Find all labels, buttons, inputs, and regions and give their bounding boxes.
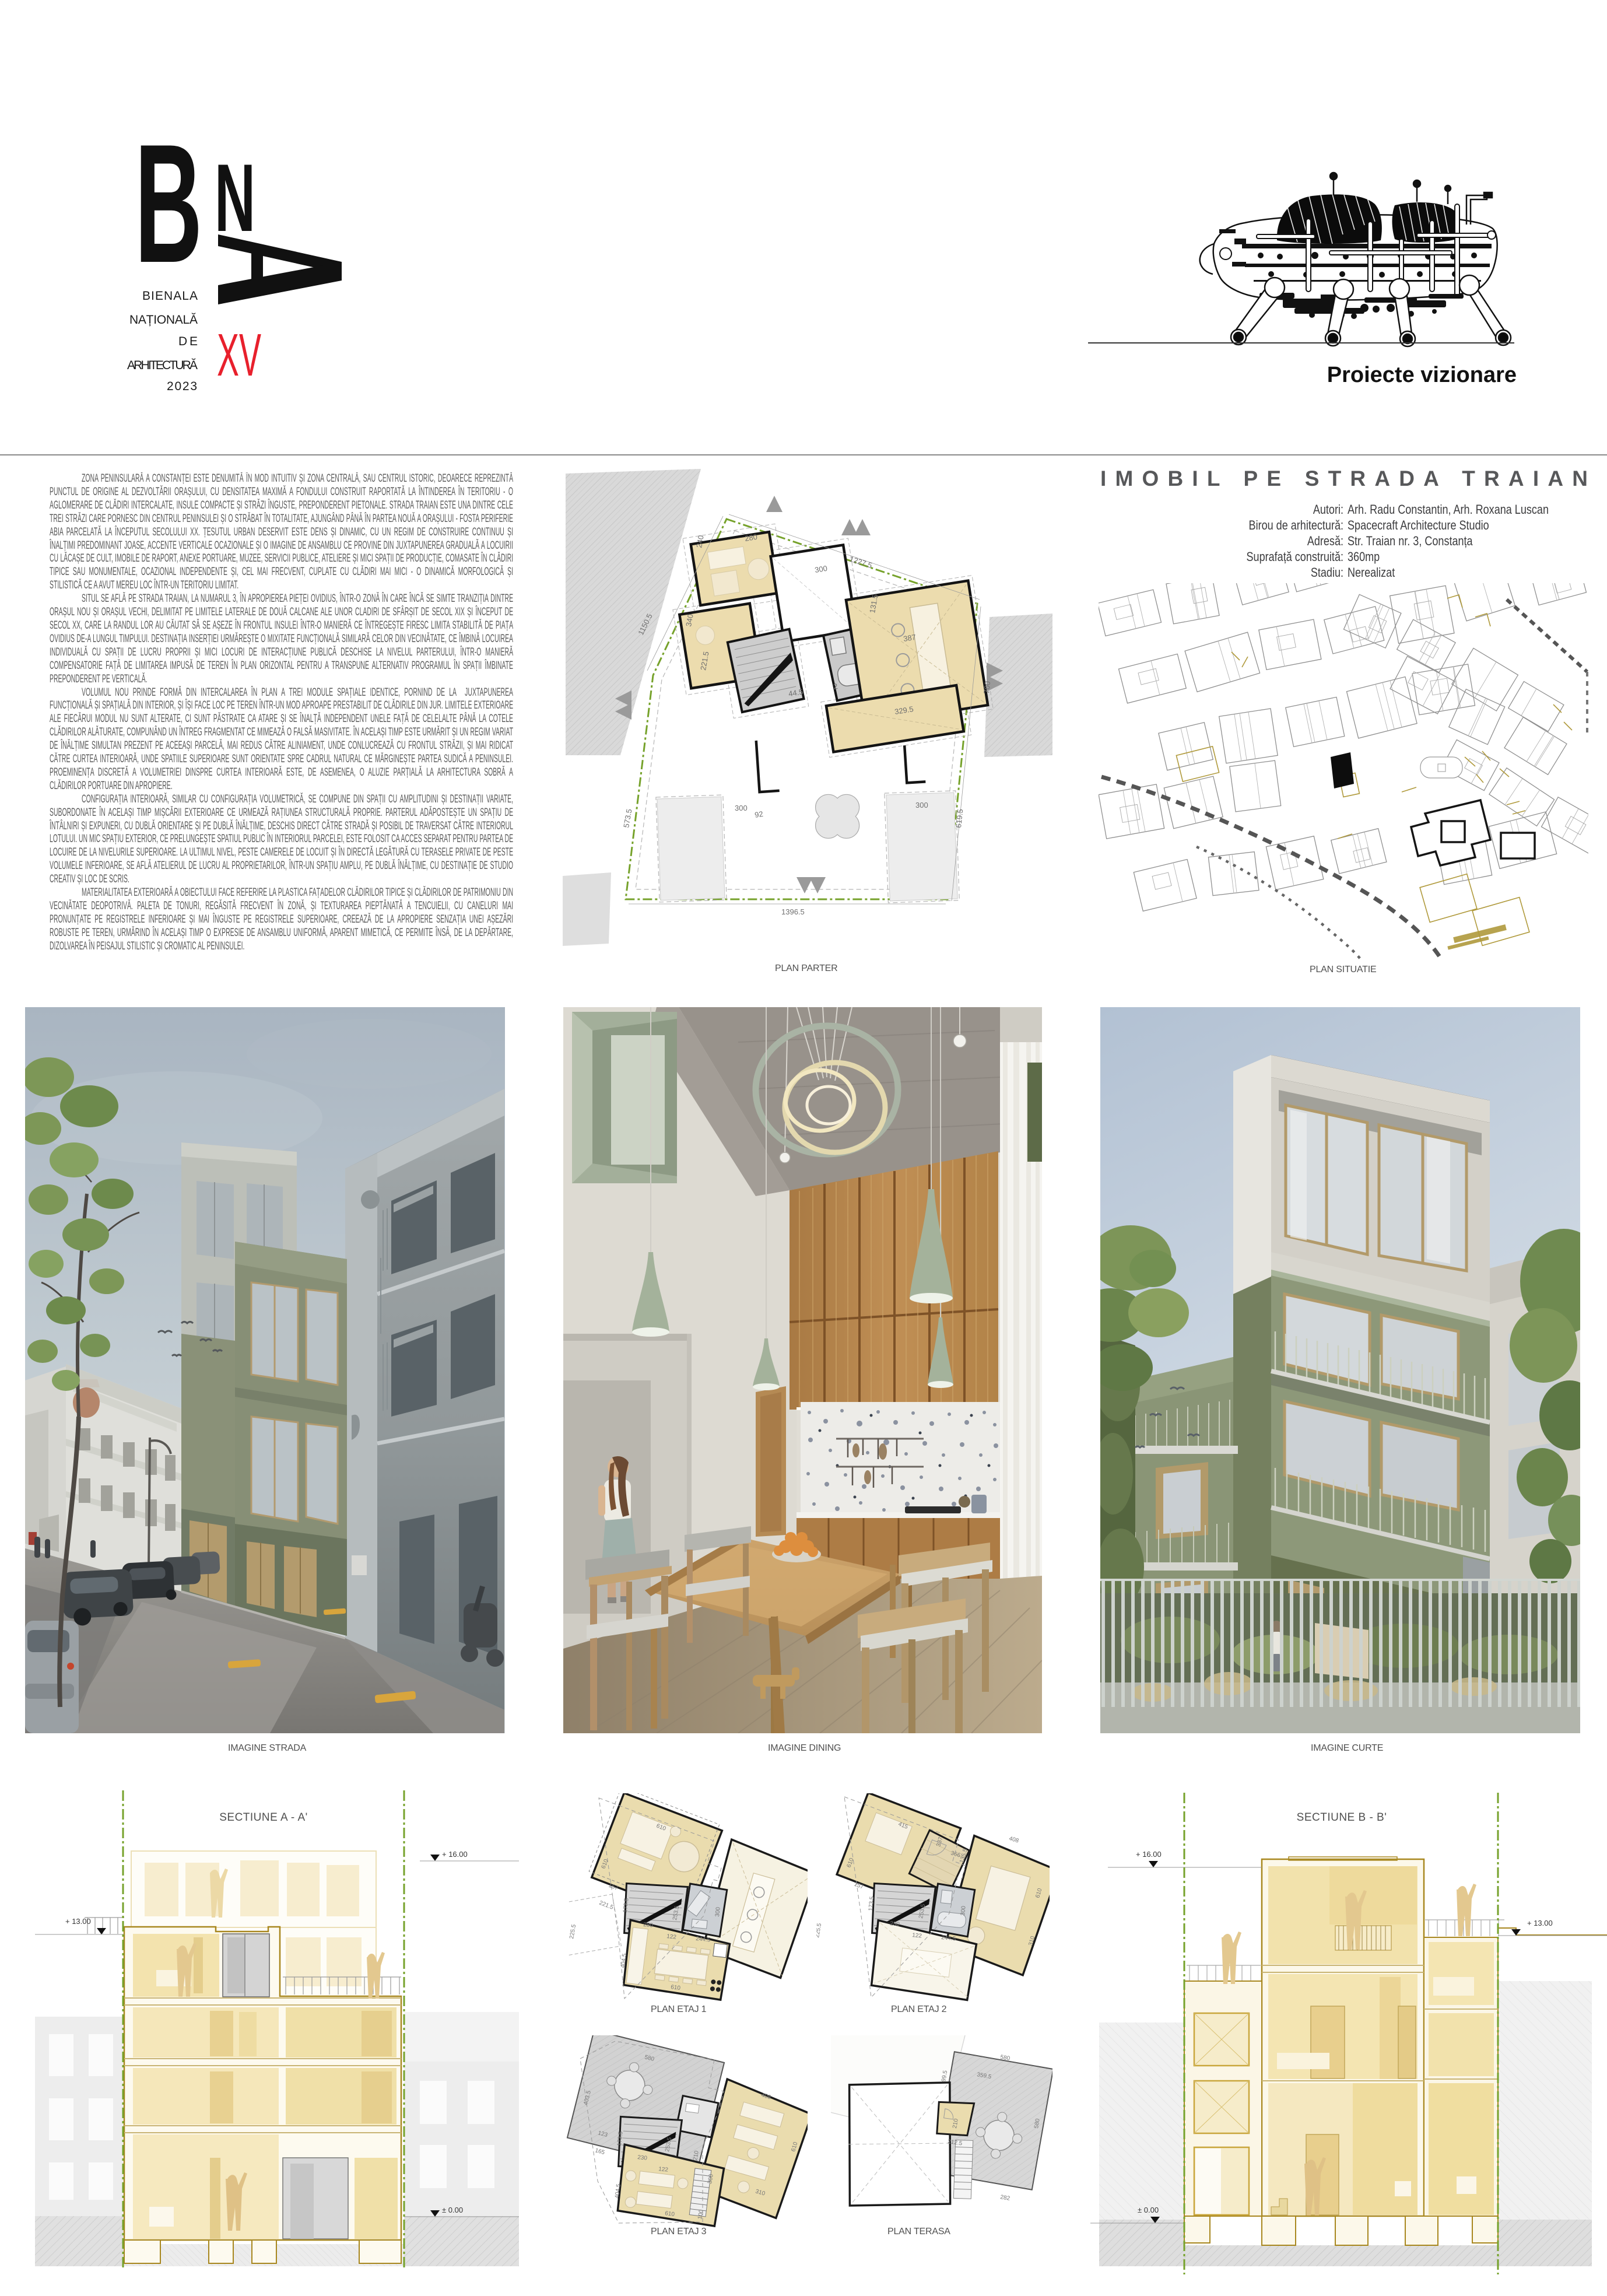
svg-text:+ 16.00: + 16.00 [442, 1850, 468, 1859]
svg-text:221.5: 221.5 [598, 1900, 615, 1911]
svg-text:ARHITECTURĂ: ARHITECTURĂ [127, 359, 198, 372]
svg-text:610: 610 [665, 2210, 675, 2218]
svg-text:300: 300 [735, 804, 748, 812]
svg-text:230: 230 [890, 1920, 900, 1928]
svg-text:+ 13.00: + 13.00 [1527, 1919, 1553, 1927]
svg-text:SECTIUNE A - A': SECTIUNE A - A' [219, 1811, 308, 1824]
svg-text:165: 165 [594, 2147, 605, 2156]
svg-text:408: 408 [1008, 1835, 1019, 1844]
svg-text:+ 13.00: + 13.00 [65, 1917, 91, 1926]
svg-text:1396.5: 1396.5 [781, 907, 805, 916]
svg-text:DE: DE [178, 335, 198, 348]
svg-text:SECTIUNE B - B': SECTIUNE B - B' [1297, 1811, 1387, 1824]
svg-text:300: 300 [915, 801, 928, 809]
svg-text:573.5: 573.5 [622, 808, 633, 829]
svg-text:280: 280 [643, 1922, 654, 1929]
svg-text:122: 122 [658, 2166, 669, 2174]
svg-text:122: 122 [912, 1932, 922, 1940]
svg-text:XV: XV [217, 321, 261, 388]
svg-text:2023: 2023 [167, 380, 197, 393]
svg-text:700: 700 [982, 681, 992, 694]
svg-text:+ 16.00: + 16.00 [1136, 1850, 1162, 1859]
svg-text:1227.5: 1227.5 [848, 555, 873, 570]
svg-text:300: 300 [960, 1905, 967, 1916]
svg-text:NAȚIONALĂ: NAȚIONALĂ [129, 313, 198, 327]
svg-text:225.5: 225.5 [569, 1924, 577, 1940]
svg-text:225.5: 225.5 [816, 1923, 823, 1939]
svg-text:B: B [135, 128, 202, 298]
svg-text:122: 122 [666, 1933, 677, 1941]
svg-text:± 0.00: ± 0.00 [442, 2206, 463, 2214]
svg-text:BIENALA: BIENALA [142, 289, 198, 303]
svg-text:610: 610 [671, 1984, 681, 1992]
svg-text:282: 282 [999, 2194, 1010, 2202]
svg-text:300: 300 [714, 1906, 722, 1917]
svg-text:230: 230 [637, 2154, 648, 2162]
svg-text:± 0.00: ± 0.00 [1138, 2206, 1159, 2214]
svg-text:619.5: 619.5 [954, 808, 964, 828]
svg-text:92: 92 [754, 809, 764, 819]
